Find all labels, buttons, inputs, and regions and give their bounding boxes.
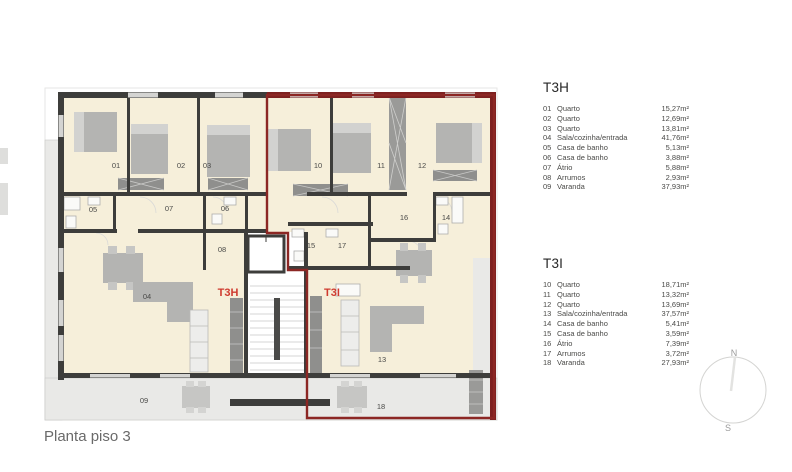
page-title: Planta piso 3 (44, 428, 131, 445)
compass-needle (731, 357, 735, 391)
legend-t3h-rows: 01Quarto15,27m² 02Quarto12,69m² 03Quarto… (543, 104, 689, 192)
room-name: Arrumos (554, 173, 666, 183)
room-label-11: 11 (377, 161, 385, 170)
legend-row: 18Varanda27,93m² (543, 358, 689, 368)
legend-t3h-title: T3H (543, 80, 689, 95)
room-name: Átrio (554, 339, 666, 349)
legend-row: 01Quarto15,27m² (543, 104, 689, 114)
legend-t3i-title: T3I (543, 256, 689, 271)
unit-label-t3h: T3H (218, 287, 239, 299)
room-area: 13,32m² (661, 290, 689, 300)
room-name: Quarto (554, 114, 661, 124)
room-name: Arrumos (554, 349, 666, 359)
legend-row: 17Arrumos3,72m² (543, 349, 689, 359)
room-area: 5,41m² (666, 319, 689, 329)
room-name: Quarto (554, 300, 661, 310)
legend-row: 06Casa de banho3,88m² (543, 153, 689, 163)
room-area: 5,88m² (666, 163, 689, 173)
legend-row: 09Varanda37,93m² (543, 182, 689, 192)
room-label-03: 03 (203, 161, 211, 170)
legend-row: 16Átrio7,39m² (543, 339, 689, 349)
room-name: Átrio (554, 163, 666, 173)
room-name: Sala/cozinha/entrada (554, 133, 661, 143)
room-label-17: 17 (338, 241, 346, 250)
room-number: 11 (543, 290, 554, 300)
room-label-15: 15 (307, 241, 315, 250)
room-area: 13,69m² (661, 300, 689, 310)
room-area: 2,93m² (666, 173, 689, 183)
room-number: 13 (543, 309, 554, 319)
room-area: 37,57m² (661, 309, 689, 319)
room-label-14: 14 (442, 213, 450, 222)
floor-plan: 01 02 03 04 05 06 07 08 09 10 11 12 13 1… (0, 0, 792, 472)
unit-label-t3i: T3I (324, 287, 340, 299)
legend-row: 04Sala/cozinha/entrada41,76m² (543, 133, 689, 143)
room-label-02: 02 (177, 161, 185, 170)
room-name: Varanda (554, 182, 661, 192)
room-name: Quarto (554, 124, 661, 134)
legend-row: 08Arrumos2,93m² (543, 173, 689, 183)
room-number: 09 (543, 182, 554, 192)
room-number: 14 (543, 319, 554, 329)
room-label-05: 05 (89, 205, 97, 214)
compass: N S (700, 348, 766, 433)
room-number: 16 (543, 339, 554, 349)
legend-t3h: T3H 01Quarto15,27m² 02Quarto12,69m² 03Qu… (543, 80, 689, 192)
room-label-06: 06 (221, 204, 229, 213)
room-number: 06 (543, 153, 554, 163)
room-number: 05 (543, 143, 554, 153)
room-number: 02 (543, 114, 554, 124)
room-label-18: 18 (377, 402, 385, 411)
room-name: Casa de banho (554, 153, 666, 163)
room-number: 17 (543, 349, 554, 359)
sheet-edge-fragment (0, 148, 8, 215)
room-label-07: 07 (165, 204, 173, 213)
legend-row: 03Quarto13,81m² (543, 124, 689, 134)
legend-row: 13Sala/cozinha/entrada37,57m² (543, 309, 689, 319)
room-number: 12 (543, 300, 554, 310)
room-number: 10 (543, 280, 554, 290)
legend-row: 11Quarto13,32m² (543, 290, 689, 300)
legend-row: 10Quarto18,71m² (543, 280, 689, 290)
room-name: Sala/cozinha/entrada (554, 309, 661, 319)
room-number: 15 (543, 329, 554, 339)
legend-t3i: T3I 10Quarto18,71m² 11Quarto13,32m² 12Qu… (543, 256, 689, 368)
room-name: Varanda (554, 358, 661, 368)
room-name: Quarto (554, 280, 661, 290)
room-number: 18 (543, 358, 554, 368)
room-label-01: 01 (112, 161, 120, 170)
room-label-04: 04 (143, 292, 151, 301)
room-number: 07 (543, 163, 554, 173)
room-area: 13,81m² (661, 124, 689, 134)
room-label-13: 13 (378, 355, 386, 364)
legend-row: 05Casa de banho5,13m² (543, 143, 689, 153)
room-area: 15,27m² (661, 104, 689, 114)
room-area: 12,69m² (661, 114, 689, 124)
elevator (248, 236, 284, 272)
room-label-12: 12 (418, 161, 426, 170)
room-number: 08 (543, 173, 554, 183)
room-name: Quarto (554, 290, 661, 300)
room-area: 7,39m² (666, 339, 689, 349)
room-label-09: 09 (140, 396, 148, 405)
room-area: 3,88m² (666, 153, 689, 163)
room-name: Casa de banho (554, 319, 666, 329)
room-number: 01 (543, 104, 554, 114)
room-name: Casa de banho (554, 143, 666, 153)
legend-row: 07Átrio5,88m² (543, 163, 689, 173)
room-number: 04 (543, 133, 554, 143)
room-area: 18,71m² (661, 280, 689, 290)
legend-row: 12Quarto13,69m² (543, 300, 689, 310)
legend-t3i-rows: 10Quarto18,71m² 11Quarto13,32m² 12Quarto… (543, 280, 689, 368)
vent-shaft (389, 97, 406, 190)
room-name: Casa de banho (554, 329, 666, 339)
room-area: 3,72m² (666, 349, 689, 359)
room-label-08: 08 (218, 245, 226, 254)
room-number: 03 (543, 124, 554, 134)
room-area: 5,13m² (666, 143, 689, 153)
room-label-10: 10 (314, 161, 322, 170)
room-area: 27,93m² (661, 358, 689, 368)
compass-south-label: S (725, 423, 731, 433)
compass-north-label: N (731, 348, 738, 358)
room-area: 41,76m² (661, 133, 689, 143)
room-area: 3,59m² (666, 329, 689, 339)
room-area: 37,93m² (661, 182, 689, 192)
stairs (248, 278, 305, 378)
legend-row: 02Quarto12,69m² (543, 114, 689, 124)
room-label-16: 16 (400, 213, 408, 222)
legend-row: 15Casa de banho3,59m² (543, 329, 689, 339)
room-name: Quarto (554, 104, 661, 114)
legend-row: 14Casa de banho5,41m² (543, 319, 689, 329)
